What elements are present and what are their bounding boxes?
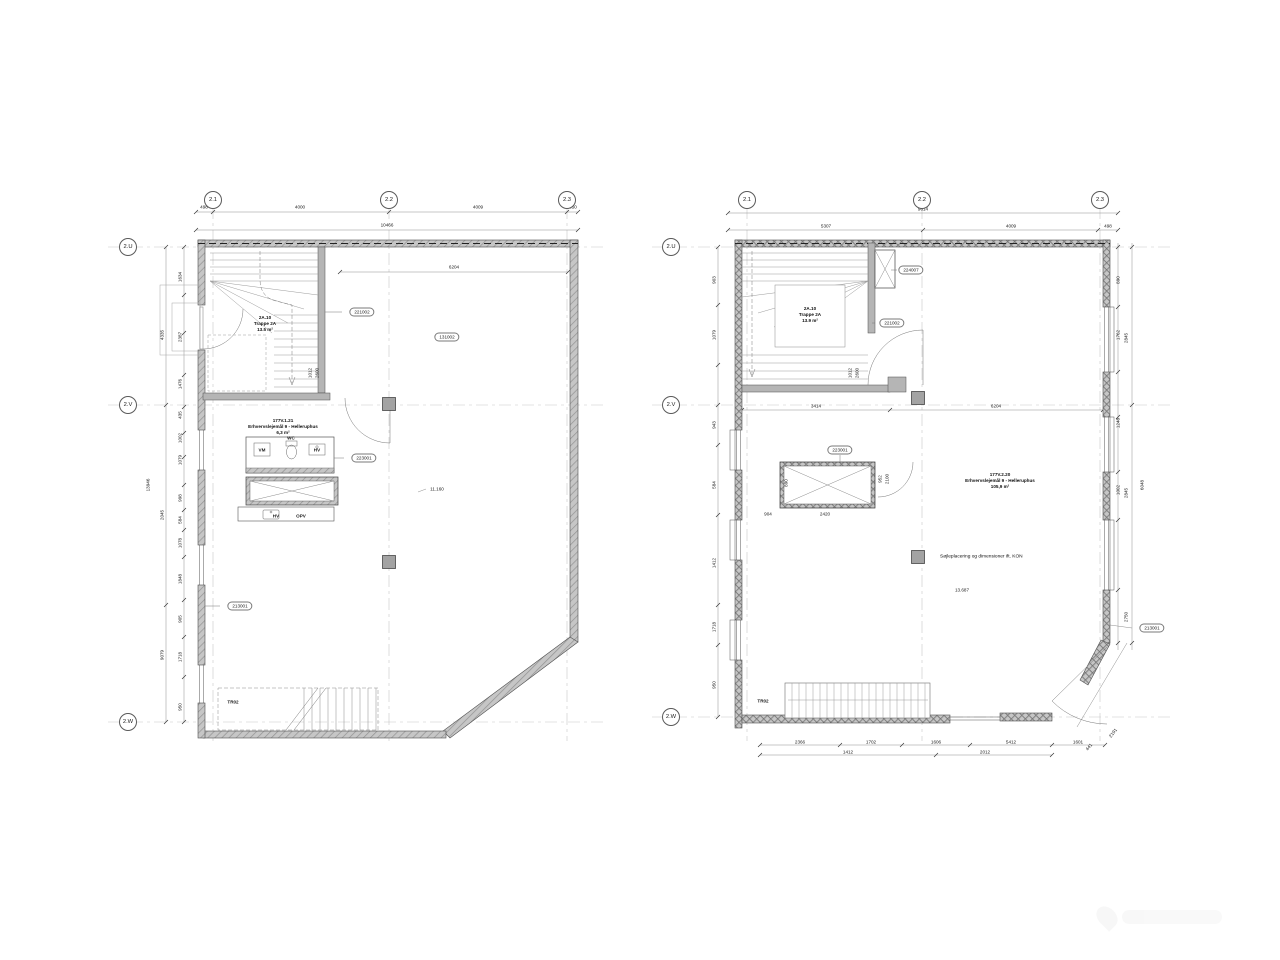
stair-label: TR02	[757, 698, 768, 703]
dim-label: 498	[1104, 223, 1112, 228]
dim-label: 2012	[980, 749, 990, 754]
stair-lower	[785, 683, 930, 718]
fixture-label: HV	[314, 447, 320, 452]
grid-bubble-row: 2.V	[119, 396, 137, 414]
dim-label: 2600	[314, 368, 319, 378]
component-tag: 223001	[827, 446, 852, 455]
floor-plan-right: 2.1 2.2 2.3 2.U 2.V 2.W 9814 5307 4009 4…	[640, 185, 1200, 785]
dim-label-total: 6048	[1139, 480, 1144, 490]
fixture-label: WC	[287, 435, 295, 440]
room-area: 6,3 m²	[248, 430, 318, 436]
dim-label: 904	[764, 511, 772, 516]
dim-label-total: 13946	[145, 479, 150, 492]
fixture-label: HV	[273, 513, 279, 518]
dim-label: 2387	[177, 332, 182, 342]
grid-bubble-col: 2.1	[738, 191, 756, 209]
dim-label: 1002	[1115, 485, 1120, 495]
room-label-main: 177V.2.20 Erhvervslejemål 9 - Helleruphu…	[965, 472, 1035, 490]
wc-block	[246, 437, 334, 473]
fixture-label: VM	[259, 447, 266, 452]
grid-lines	[108, 207, 605, 741]
dim-label: 584	[711, 481, 716, 489]
floor-plan-sheet: 2.1 2.2 2.3 2.U 2.V 2.W 498 4000 4009 35…	[0, 0, 1280, 960]
dim-label: 5412	[1006, 739, 1016, 744]
dim-label: 3414	[811, 403, 821, 408]
watermark	[1098, 905, 1222, 929]
dim-label: 1606	[931, 739, 941, 744]
plan-linework-left	[60, 185, 620, 785]
dim-label: 2750	[1123, 612, 1128, 622]
dim-label: 6204	[991, 403, 1001, 408]
dim-label: 11.160	[430, 486, 444, 491]
dim-label: 890	[783, 479, 788, 487]
room-area: 13.5 m²	[254, 327, 276, 333]
dim-label: 2845	[1123, 488, 1128, 498]
dim-label: 903	[711, 276, 716, 284]
dim-label: 1848	[177, 574, 182, 584]
floor-plan-left: 2.1 2.2 2.3 2.U 2.V 2.W 498 4000 4009 35…	[60, 185, 620, 785]
dim-label: 2845	[1123, 333, 1128, 343]
grid-bubble-row: 2.V	[662, 396, 680, 414]
dim-label: 1248	[1115, 418, 1120, 428]
dim-label: 2366	[795, 739, 805, 744]
dim-label: 6204	[449, 264, 459, 269]
component-tag: 224007	[898, 266, 923, 275]
stair-lower	[218, 688, 378, 730]
fixture-label: OPV	[296, 513, 306, 518]
room-area: 13.9 m²	[799, 318, 821, 324]
grid-bubble-row: 2.U	[662, 238, 680, 256]
dim-label: 1079	[711, 330, 716, 340]
dim-label: 4000	[295, 204, 305, 209]
grid-bubble-col: 2.2	[380, 191, 398, 209]
dim-label: 1762	[1115, 330, 1120, 340]
counter	[238, 507, 334, 521]
watermark-pin-icon	[1092, 902, 1122, 932]
component-tag: 221002	[879, 319, 904, 328]
dim-label: 4009	[473, 204, 483, 209]
component-tag: 223001	[351, 454, 376, 463]
dim-label: 4009	[1006, 223, 1016, 228]
component-tag: 213001	[1139, 624, 1164, 633]
columns	[912, 392, 925, 564]
dim-label: 1412	[843, 749, 853, 754]
component-tag: 131002	[434, 333, 459, 342]
dim-label: 1476	[177, 379, 182, 389]
dimension-ticks	[164, 210, 580, 724]
dim-label: 2100	[884, 474, 889, 484]
dim-label: 950	[711, 681, 716, 689]
room-label-stair: 2A.10 Trappe 2A 13.5 m²	[254, 315, 276, 333]
dim-label: 1012	[307, 368, 312, 378]
dim-label-total: 10466	[381, 222, 394, 227]
dim-label: 890	[1115, 276, 1120, 284]
dim-label: 584	[177, 516, 182, 524]
grid-bubble-row: 2.W	[662, 708, 680, 726]
dim-label: 1412	[711, 558, 716, 568]
dim-label: 1634	[177, 272, 182, 282]
dim-label: 952	[877, 475, 882, 483]
column-note: Søjleplacering og dimensioner ift. KON	[940, 555, 1023, 560]
dim-label: 2420	[820, 511, 830, 516]
dim-label: 2045	[159, 510, 164, 520]
dim-label: 435	[177, 411, 182, 419]
grid-bubble-col: 2.3	[558, 191, 576, 209]
dim-label: 1601	[1073, 739, 1083, 744]
dim-label: 998	[177, 494, 182, 502]
stair-label: TR02	[227, 699, 238, 704]
grid-bubble-col: 2.1	[204, 191, 222, 209]
dim-label: 4335	[159, 330, 164, 340]
grid-bubble-col: 2.2	[913, 191, 931, 209]
dim-label: 2600	[854, 368, 859, 378]
dim-label: 5307	[821, 223, 831, 228]
dim-label: 943	[711, 421, 716, 429]
watermark-text-blob	[1122, 910, 1222, 924]
shaft	[246, 477, 338, 505]
dim-label: 1702	[866, 739, 876, 744]
dim-label: 950	[177, 703, 182, 711]
dim-label: 1012	[847, 368, 852, 378]
grid-bubble-col: 2.3	[1091, 191, 1109, 209]
dim-label: 1718	[177, 652, 182, 662]
dim-label: 1079	[177, 455, 182, 465]
component-tag: 213001	[227, 602, 252, 611]
dim-label: 1718	[711, 622, 716, 632]
dim-label: 9079	[159, 650, 164, 660]
room-area: 105,9 m²	[965, 484, 1035, 490]
shaft-small	[875, 250, 895, 288]
dim-label: 13.687	[955, 587, 969, 592]
component-tag: 221002	[349, 308, 374, 317]
room-label-wc: 177V.1.21 Erhvervslejemål 9 - Helleruphu…	[248, 418, 318, 436]
dim-label: 1002	[177, 433, 182, 443]
room-label-stair: 2A.10 Trappe 2A 13.9 m²	[799, 306, 821, 324]
shaft	[780, 462, 875, 508]
dimension-lines	[166, 212, 578, 722]
dim-label: 905	[177, 615, 182, 623]
grid-bubble-row: 2.W	[119, 713, 137, 731]
dim-label: 1078	[177, 538, 182, 548]
grid-bubble-row: 2.U	[119, 238, 137, 256]
